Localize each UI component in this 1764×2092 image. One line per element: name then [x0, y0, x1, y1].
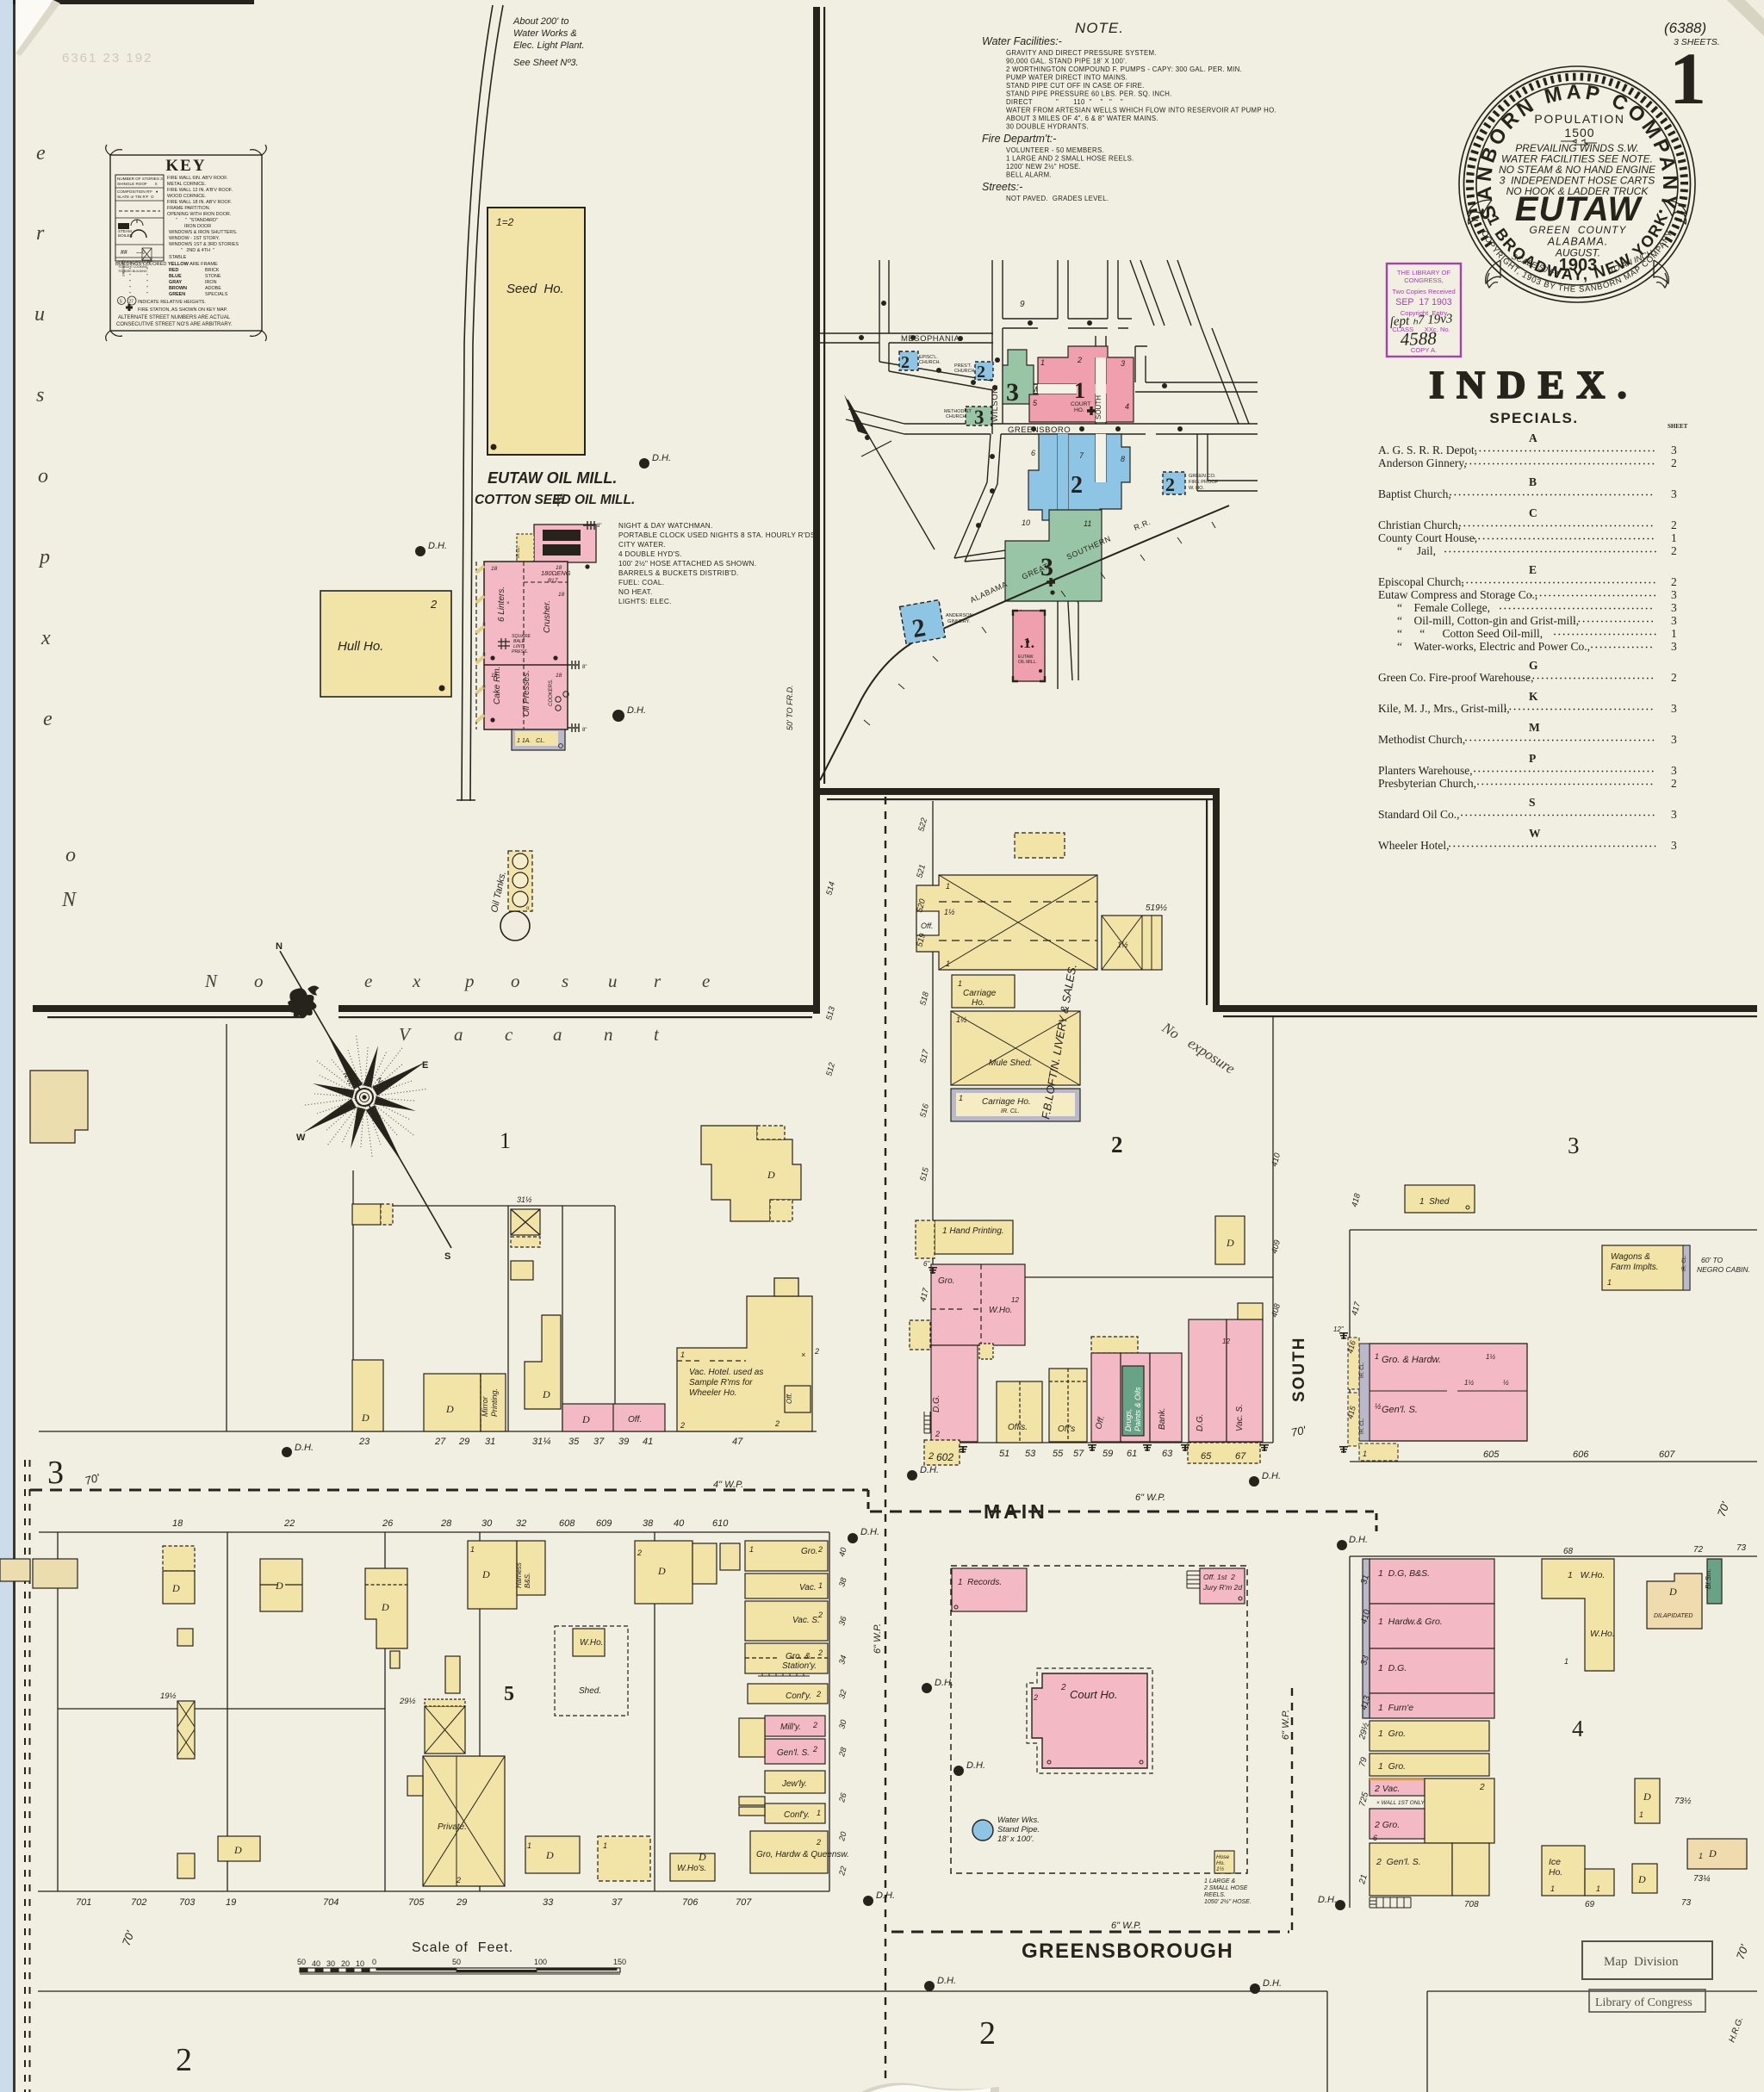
svg-text:Gen'l. S.: Gen'l. S.	[1382, 1405, 1418, 1415]
svg-text:W.Ho.: W.Ho.	[580, 1638, 603, 1648]
svg-text:½: ½	[1375, 1402, 1382, 1411]
svg-text:73½: 73½	[1674, 1797, 1692, 1806]
svg-text:Private.: Private.	[438, 1822, 467, 1832]
svg-text:65: 65	[1201, 1451, 1212, 1462]
svg-text:D.H.: D.H.	[295, 1443, 314, 1453]
svg-text:OIL MILL.: OIL MILL.	[1018, 660, 1037, 665]
svg-text:D: D	[1643, 1791, 1651, 1803]
svg-text:2: 2	[1671, 456, 1677, 469]
svg-text:BROWN: BROWN	[169, 286, 187, 291]
svg-text:D.G.: D.G.	[1196, 1413, 1205, 1431]
svg-text:Stand Pipe.: Stand Pipe.	[997, 1825, 1040, 1834]
svg-text:Off's.: Off's.	[1008, 1423, 1028, 1432]
svg-text:6": 6"	[923, 1260, 930, 1268]
svg-text:“ Female College,: “ Female College,	[1397, 601, 1490, 614]
svg-text:ALABAMA.: ALABAMA.	[1547, 236, 1609, 248]
svg-text:D: D	[1708, 1847, 1717, 1859]
svg-text:1: 1	[1669, 37, 1706, 120]
svg-text:Gro. &: Gro. &	[786, 1652, 811, 1661]
svg-text:SLATE or TIN R'F O: SLATE or TIN R'F O	[117, 195, 154, 199]
svg-text:D.H.: D.H.	[428, 541, 447, 551]
svg-text:S: S	[444, 1251, 450, 1262]
svg-text:About 200' to: About 200' to	[512, 16, 569, 27]
svg-text:3: 3	[1671, 702, 1677, 715]
svg-text:Water Facilities:-: Water Facilities:-	[982, 35, 1062, 47]
svg-text:Court Ho.: Court Ho.	[1070, 1688, 1118, 1701]
svg-text:2: 2	[680, 1421, 685, 1430]
svg-text:53: 53	[1025, 1449, 1036, 1459]
svg-text:6361 23 192: 6361 23 192	[62, 51, 152, 65]
svg-text:D.H.: D.H.	[937, 1976, 956, 1986]
svg-text:" ": " "	[129, 268, 148, 273]
svg-text:IR. CL.: IR. CL.	[1001, 1108, 1020, 1114]
svg-text:609: 609	[596, 1518, 612, 1529]
svg-text:2: 2	[1077, 356, 1082, 364]
svg-text:3: 3	[1671, 588, 1677, 601]
svg-text:B'LT.: B'LT.	[548, 579, 559, 584]
svg-text:½: ½	[1503, 1379, 1509, 1387]
svg-text:Water Wks.: Water Wks.	[997, 1816, 1040, 1825]
svg-text:D: D	[445, 1403, 454, 1415]
svg-text:59: 59	[1102, 1449, 1113, 1459]
svg-text:SOUTH: SOUTH	[1095, 395, 1102, 419]
svg-text:708: 708	[1464, 1900, 1479, 1909]
svg-text:3: 3	[1568, 1133, 1580, 1158]
svg-text:1: 1	[946, 882, 950, 891]
svg-text:29: 29	[456, 1897, 467, 1908]
svg-text:D: D	[381, 1601, 389, 1613]
svg-text:Shed.: Shed.	[579, 1686, 601, 1696]
svg-text:1=2: 1=2	[496, 216, 514, 228]
svg-text:2: 2	[817, 1648, 823, 1657]
svg-text:K: K	[1529, 690, 1538, 703]
svg-text:NOTE.: NOTE.	[1075, 20, 1124, 36]
svg-text:2: 2	[456, 1876, 461, 1884]
svg-text:FIRE WALL 12 IN. A'B'V ROOF.: FIRE WALL 12 IN. A'B'V ROOF.	[167, 188, 233, 193]
svg-text:2: 2	[1165, 474, 1175, 495]
svg-text:ANDERSON: ANDERSON	[946, 613, 973, 618]
svg-text:2: 2	[176, 2042, 192, 2078]
svg-text:C: C	[1529, 506, 1537, 519]
svg-text:9: 9	[1020, 300, 1025, 309]
svg-text:DIRECT " 110: DIRECT " 110 " " " "	[1006, 98, 1123, 106]
svg-text:8": 8"	[582, 728, 587, 733]
svg-text:26: 26	[382, 1518, 394, 1529]
svg-text:STAND PIPE PRESSURE 60 LBS. PE: STAND PIPE PRESSURE 60 LBS. PER. SQ. INC…	[1006, 90, 1172, 98]
svg-text:1: 1	[527, 1841, 531, 1850]
svg-text:1: 1	[1550, 1884, 1555, 1893]
svg-text:P: P	[1529, 752, 1536, 765]
svg-text:D.H.: D.H.	[1262, 1471, 1281, 1481]
svg-text:1200' NEW 2½" HOSE.: 1200' NEW 2½" HOSE.	[1006, 163, 1081, 171]
svg-text:1 Gro.: 1 Gro.	[1378, 1761, 1406, 1772]
svg-text:GREEN COUNTY: GREEN COUNTY	[1529, 224, 1626, 236]
svg-text:BARRELS & BUCKETS DISTRIB'D.: BARRELS & BUCKETS DISTRIB'D.	[618, 569, 739, 577]
svg-text:COMPOSITION R'F ●: COMPOSITION R'F ●	[117, 189, 158, 194]
svg-text:u: u	[34, 303, 45, 326]
svg-text:s: s	[562, 971, 568, 991]
svg-text:D: D	[1668, 1586, 1677, 1598]
svg-text:A. G. S. R. R. Depot,: A. G. S. R. R. Depot,	[1378, 444, 1477, 456]
svg-text:1: 1	[1596, 1884, 1600, 1893]
svg-text:×: ×	[506, 601, 510, 606]
svg-text:D.H.: D.H.	[876, 1890, 895, 1901]
svg-text:100: 100	[534, 1958, 547, 1966]
svg-text:W: W	[296, 1133, 306, 1143]
svg-text:D.H.: D.H.	[1263, 1978, 1282, 1989]
svg-text:Wheeler Hotel,: Wheeler Hotel,	[1378, 839, 1449, 852]
svg-text:S: S	[1529, 796, 1536, 809]
svg-text:A: A	[1529, 431, 1537, 444]
svg-text:SPECIALS: SPECIALS	[205, 292, 228, 297]
svg-text:Vac. Hotel. used as: Vac. Hotel. used as	[689, 1368, 763, 1377]
svg-text:ADOBE: ADOBE	[205, 286, 221, 291]
svg-text:STAND PIPE CUT OFF IN CASE OF: STAND PIPE CUT OFF IN CASE OF FIRE.	[1006, 82, 1145, 90]
svg-text:2: 2	[1033, 1693, 1038, 1702]
svg-text:1 Gro.: 1 Gro.	[1378, 1729, 1406, 1739]
svg-text:2: 2	[774, 1419, 780, 1428]
svg-text:SPECIALS.: SPECIALS.	[1489, 410, 1578, 426]
svg-text:Off's: Off's	[1058, 1425, 1075, 1434]
svg-text:1 W.Ho.: 1 W.Ho.	[1568, 1570, 1605, 1580]
svg-text:n: n	[604, 1024, 613, 1045]
svg-text:35: 35	[568, 1437, 580, 1447]
svg-text:1½: 1½	[944, 908, 955, 916]
svg-text:607: 607	[1659, 1450, 1675, 1460]
svg-text:Vac. S.: Vac. S.	[792, 1616, 820, 1625]
svg-text:County Court House,: County Court House,	[1378, 531, 1477, 544]
svg-text:23: 23	[358, 1437, 370, 1447]
svg-text:1 Shed: 1 Shed	[1419, 1197, 1450, 1207]
svg-text:" 2ND & 4TH ": " 2ND & 4TH "	[181, 248, 214, 253]
svg-text:r: r	[654, 971, 661, 991]
svg-text:1: 1	[1671, 531, 1677, 544]
svg-text:ALTERNATE STREET NUMBERS ARE A: ALTERNATE STREET NUMBERS ARE ACTUAL	[118, 315, 231, 320]
svg-text:PRESS.: PRESS.	[512, 649, 528, 655]
svg-text:2 Vac.: 2 Vac.	[1374, 1784, 1400, 1794]
svg-text:RED: RED	[169, 268, 178, 273]
svg-text:Mirror: Mirror	[481, 1396, 489, 1417]
svg-text:a: a	[454, 1024, 463, 1045]
svg-text:3: 3	[1671, 614, 1677, 627]
svg-text:See Sheet Nº3.: See Sheet Nº3.	[513, 58, 579, 68]
svg-text:Paints & Oils: Paints & Oils	[1134, 1387, 1142, 1431]
svg-text:1: 1	[680, 1350, 685, 1359]
svg-text:1: 1	[603, 1841, 607, 1850]
svg-text:8": 8"	[582, 665, 587, 670]
svg-text:e: e	[43, 708, 53, 730]
svg-text:W.Ho.: W.Ho.	[1590, 1629, 1615, 1639]
svg-text:Conf'y.: Conf'y.	[784, 1810, 810, 1820]
svg-text:FUEL: COAL.: FUEL: COAL.	[618, 579, 664, 587]
svg-text:Green Co. Fire-proof Warehouse: Green Co. Fire-proof Warehouse,	[1378, 671, 1533, 684]
svg-text:18: 18	[558, 592, 565, 598]
svg-text:4: 4	[1125, 402, 1129, 411]
svg-text:Jury R'm 2d: Jury R'm 2d	[1202, 1583, 1242, 1592]
svg-text:2: 2	[430, 598, 438, 611]
svg-text:a: a	[553, 1024, 562, 1045]
svg-text:12: 12	[1222, 1338, 1230, 1345]
svg-text:D: D	[1637, 1873, 1646, 1885]
svg-text:Gro.: Gro.	[801, 1547, 817, 1556]
svg-text:2: 2	[1111, 1132, 1123, 1158]
svg-text:REELS.: REELS.	[1204, 1892, 1226, 1898]
svg-text:4: 4	[1572, 1716, 1584, 1741]
svg-text:30: 30	[326, 1959, 335, 1968]
svg-text:Episcopal Church,: Episcopal Church,	[1378, 575, 1464, 588]
svg-text:E: E	[422, 1060, 428, 1071]
svg-text:50: 50	[297, 1958, 306, 1966]
svg-text:2: 2	[1479, 1783, 1485, 1792]
svg-text:1: 1	[1699, 1852, 1703, 1860]
svg-text:D: D	[581, 1413, 590, 1425]
svg-text:707: 707	[736, 1897, 752, 1908]
svg-text:73: 73	[1681, 1898, 1692, 1908]
svg-text:Standard Oil Co.,: Standard Oil Co.,	[1378, 808, 1460, 821]
svg-text:D: D	[481, 1568, 490, 1580]
svg-text:3: 3	[1006, 378, 1019, 407]
svg-text:GINNERY.: GINNERY.	[947, 619, 971, 624]
svg-text:1 D.G, B&S.: 1 D.G, B&S.	[1378, 1568, 1430, 1579]
svg-text:33: 33	[543, 1897, 554, 1908]
svg-text:27: 27	[434, 1437, 446, 1447]
svg-text:6 Linters.: 6 Linters.	[497, 587, 506, 622]
svg-text:Oil Presses.: Oil Presses.	[522, 670, 531, 717]
svg-text:6: 6	[1031, 449, 1035, 457]
svg-text:Eutaw Compress and Storage Co.: Eutaw Compress and Storage Co.,	[1378, 588, 1537, 601]
svg-text:1 Records.: 1 Records.	[958, 1578, 1002, 1587]
svg-text:1 LARGE AND 2 SMALL HOSE REELS: 1 LARGE AND 2 SMALL HOSE REELS.	[1006, 155, 1134, 163]
svg-text:605: 605	[1483, 1450, 1500, 1460]
svg-text:18: 18	[491, 673, 498, 679]
svg-text:Seed Ho.: Seed Ho.	[506, 282, 564, 296]
svg-text:69: 69	[1585, 1900, 1595, 1909]
svg-text:50: 50	[452, 1958, 461, 1966]
svg-text:30 DOUBLE HYDRANTS.: 30 DOUBLE HYDRANTS.	[1006, 123, 1089, 131]
svg-text:r: r	[36, 222, 45, 245]
svg-text:1: 1	[817, 1809, 821, 1817]
svg-text:2: 2	[817, 1545, 823, 1554]
svg-text:55: 55	[1053, 1449, 1064, 1459]
svg-text:3: 3	[1671, 444, 1677, 456]
svg-text:×: ×	[482, 622, 486, 628]
svg-text:Presbyterian Church,: Presbyterian Church,	[1378, 777, 1476, 790]
svg-text:Streets:-: Streets:-	[982, 181, 1022, 193]
svg-text:6" W.P.: 6" W.P.	[1281, 1710, 1291, 1740]
svg-text:1½: 1½	[956, 1015, 967, 1024]
svg-text:NO HEAT.: NO HEAT.	[618, 588, 653, 596]
svg-text:706: 706	[682, 1897, 699, 1908]
svg-text:D: D	[657, 1565, 666, 1577]
svg-text:2: 2	[817, 1611, 823, 1619]
svg-text:Ho.: Ho.	[1549, 1867, 1562, 1878]
svg-text:1: 1	[1564, 1657, 1568, 1666]
svg-text:12: 12	[1011, 1296, 1019, 1304]
svg-text:1 D.G.: 1 D.G.	[1378, 1663, 1407, 1673]
svg-text:BLUE: BLUE	[169, 274, 182, 279]
svg-text:18: 18	[556, 673, 562, 679]
svg-text:3: 3	[1671, 487, 1677, 500]
svg-text:Gro, Hardw & Queensw.: Gro, Hardw & Queensw.	[756, 1850, 849, 1859]
svg-text:G: G	[1529, 659, 1538, 672]
svg-text:D: D	[545, 1849, 554, 1861]
svg-text:100' 2½" HOSE ATTACHED AS SHOW: 100' 2½" HOSE ATTACHED AS SHOWN.	[618, 560, 756, 568]
svg-text:31½: 31½	[517, 1195, 532, 1204]
svg-text:2: 2	[814, 1347, 819, 1356]
svg-text:× WALL 1ST ONLY: × WALL 1ST ONLY	[1376, 1800, 1425, 1806]
svg-text:606: 606	[1573, 1450, 1589, 1460]
svg-text:SEP 17 1903: SEP 17 1903	[1395, 297, 1451, 307]
svg-text:5: 5	[504, 1683, 514, 1705]
svg-text:610: 610	[712, 1518, 729, 1529]
svg-text:D: D	[275, 1580, 283, 1592]
svg-text:KEY: KEY	[165, 157, 206, 175]
svg-text:W. HO.: W. HO.	[1189, 486, 1204, 491]
svg-text:SHINGLE ROOF X: SHINGLE ROOF X	[117, 182, 158, 186]
svg-text:FRAME PARTITION.: FRAME PARTITION.	[167, 206, 210, 211]
svg-text:WILSON.: WILSON.	[991, 384, 1000, 422]
svg-text:Elec. Light Plant.: Elec. Light Plant.	[513, 40, 585, 51]
svg-text:51: 51	[999, 1449, 1009, 1459]
svg-text:CHURCH: CHURCH	[946, 414, 966, 419]
svg-text:D: D	[542, 1388, 550, 1400]
svg-text:29½: 29½	[399, 1697, 416, 1706]
svg-text:Station'y.: Station'y.	[782, 1661, 817, 1671]
svg-text:39: 39	[618, 1437, 629, 1447]
svg-text:FIRE WALL 6IN. AB'V ROOF.: FIRE WALL 6IN. AB'V ROOF.	[167, 176, 227, 181]
svg-text:150: 150	[613, 1958, 626, 1966]
svg-text:1 1A. CL.: 1 1A. CL.	[517, 738, 545, 744]
svg-text:Gen'l. S.: Gen'l. S.	[777, 1748, 810, 1758]
svg-text:3: 3	[1671, 640, 1677, 653]
svg-text:Jew'ly.: Jew'ly.	[781, 1779, 807, 1789]
svg-text:2: 2	[979, 2015, 996, 2052]
svg-text:31: 31	[485, 1437, 495, 1447]
svg-text:1903: 1903	[1559, 256, 1598, 275]
svg-text:Mill'y.: Mill'y.	[780, 1723, 801, 1732]
svg-text:CITY WATER.: CITY WATER.	[618, 541, 666, 549]
svg-text:2: 2	[1071, 472, 1083, 499]
svg-text:STABLE: STABLE	[169, 255, 187, 260]
svg-text:p: p	[38, 546, 50, 568]
svg-text:IR. CL.: IR. CL.	[1360, 1362, 1365, 1378]
svg-text:IRON: IRON	[205, 280, 217, 285]
svg-text:D: D	[361, 1412, 370, 1424]
svg-text:POPULATION: POPULATION	[1534, 112, 1624, 126]
svg-text:Hose: Hose	[1216, 1854, 1230, 1860]
svg-text:IR.CL.: IR.CL.	[516, 546, 521, 558]
svg-text:519½: 519½	[1146, 903, 1168, 913]
svg-text:Map Division: Map Division	[1604, 1955, 1679, 1969]
svg-text:“ Oil-mill, Cotton-gin and: “ Oil-mill, Cotton-gin and Grist-mill,	[1397, 614, 1579, 627]
svg-text:10: 10	[1022, 518, 1030, 527]
svg-text:1050' 2½" HOSE.: 1050' 2½" HOSE.	[1204, 1898, 1252, 1905]
svg-text:37: 37	[593, 1437, 605, 1447]
svg-text:Fire Departm't:-: Fire Departm't:-	[982, 133, 1056, 145]
svg-text:3: 3	[47, 1455, 64, 1491]
svg-text:4588: 4588	[1400, 328, 1437, 350]
svg-text:Wagons &: Wagons &	[1611, 1252, 1650, 1262]
svg-text:D.H.: D.H.	[860, 1527, 879, 1537]
svg-text:705: 705	[408, 1897, 425, 1908]
svg-text:GREENSBOROUGH: GREENSBOROUGH	[1022, 1940, 1233, 1963]
svg-text:FIRE WALL 18 IN. AB'V ROOF.: FIRE WALL 18 IN. AB'V ROOF.	[167, 200, 232, 205]
svg-text:SOUTH: SOUTH	[1290, 1337, 1308, 1403]
svg-text:41: 41	[643, 1437, 653, 1447]
svg-text:1: 1	[1671, 627, 1677, 640]
svg-text:6" W.P.: 6" W.P.	[873, 1623, 883, 1654]
svg-text:57: 57	[1073, 1449, 1084, 1459]
svg-text:Kile, M. J., Mrs., Grist-mill,: Kile, M. J., Mrs., Grist-mill,	[1378, 702, 1510, 715]
svg-text:D: D	[233, 1844, 242, 1856]
svg-text:u: u	[608, 971, 618, 991]
svg-text:NOT PAVED. GRADES LEVEL.: NOT PAVED. GRADES LEVEL.	[1006, 195, 1109, 202]
svg-text:x: x	[40, 627, 51, 649]
svg-text:22: 22	[283, 1518, 295, 1529]
svg-text:608: 608	[559, 1518, 575, 1529]
svg-text:B: B	[1529, 475, 1537, 488]
svg-text:D.H.: D.H.	[1349, 1535, 1368, 1545]
svg-text:60' TO: 60' TO	[1701, 1256, 1723, 1264]
svg-text:3: 3	[1671, 601, 1677, 614]
svg-text:D.H.: D.H.	[966, 1760, 985, 1771]
svg-text:Two Copies Received: Two Copies Received	[1392, 288, 1455, 295]
svg-text:2: 2	[901, 353, 910, 372]
svg-text:704: 704	[323, 1897, 339, 1908]
svg-text:2: 2	[637, 1549, 642, 1557]
svg-text:N: N	[61, 889, 78, 911]
svg-text:EUTAW OIL MILL.: EUTAW OIL MILL.	[488, 469, 617, 487]
svg-text:701: 701	[76, 1897, 91, 1908]
svg-text:1½: 1½	[1464, 1379, 1474, 1387]
svg-text:1 Hand Printing.: 1 Hand Printing.	[942, 1226, 1004, 1236]
svg-text:27: 27	[129, 300, 134, 305]
svg-text:11: 11	[1084, 519, 1091, 528]
svg-text:Planters Warehouse,: Planters Warehouse,	[1378, 764, 1473, 777]
svg-text:×: ×	[482, 685, 486, 691]
svg-text:1 LARGE &: 1 LARGE &	[1204, 1878, 1236, 1884]
svg-text:GREENSBORO: GREENSBORO	[1008, 425, 1071, 435]
svg-text:D.H.: D.H.	[627, 705, 646, 716]
svg-text:CONGRESS,: CONGRESS,	[1404, 276, 1444, 284]
svg-text:WINDOWS & IRON SHUTTERS.: WINDOWS & IRON SHUTTERS.	[169, 230, 237, 235]
svg-text:30: 30	[481, 1518, 493, 1529]
svg-text:MESOPHANIA.: MESOPHANIA.	[901, 334, 963, 344]
svg-text:2: 2	[1671, 777, 1677, 790]
svg-text:2: 2	[1671, 518, 1677, 531]
svg-text:" ": " "	[129, 286, 148, 291]
svg-text:NIGHT & DAY WATCHMAN.: NIGHT & DAY WATCHMAN.	[618, 522, 713, 530]
svg-text:Carriage Ho.: Carriage Ho.	[982, 1097, 1031, 1107]
svg-text:e: e	[702, 971, 710, 991]
svg-text:Ice: Ice	[1549, 1857, 1561, 1867]
svg-text:2: 2	[812, 1745, 817, 1754]
svg-text:##: ##	[121, 250, 127, 256]
svg-text:BRICK: BRICK	[205, 268, 220, 273]
svg-text:Farm Implts.: Farm Implts.	[1611, 1263, 1659, 1272]
svg-text:1½: 1½	[1117, 940, 1128, 949]
svg-text:2: 2	[1060, 1683, 1066, 1692]
svg-text:2: 2	[816, 1690, 821, 1698]
svg-text:x: x	[412, 971, 421, 991]
svg-text:6" W.P.: 6" W.P.	[1135, 1493, 1165, 1503]
svg-text:THE LIBRARY OF: THE LIBRARY OF	[1397, 269, 1451, 276]
svg-text:Gro.: Gro.	[938, 1276, 954, 1286]
svg-text:20: 20	[341, 1959, 350, 1968]
svg-text:D: D	[171, 1582, 180, 1594]
svg-text:" ": " "	[129, 274, 148, 279]
svg-text:INDEX.: INDEX.	[1429, 363, 1639, 407]
